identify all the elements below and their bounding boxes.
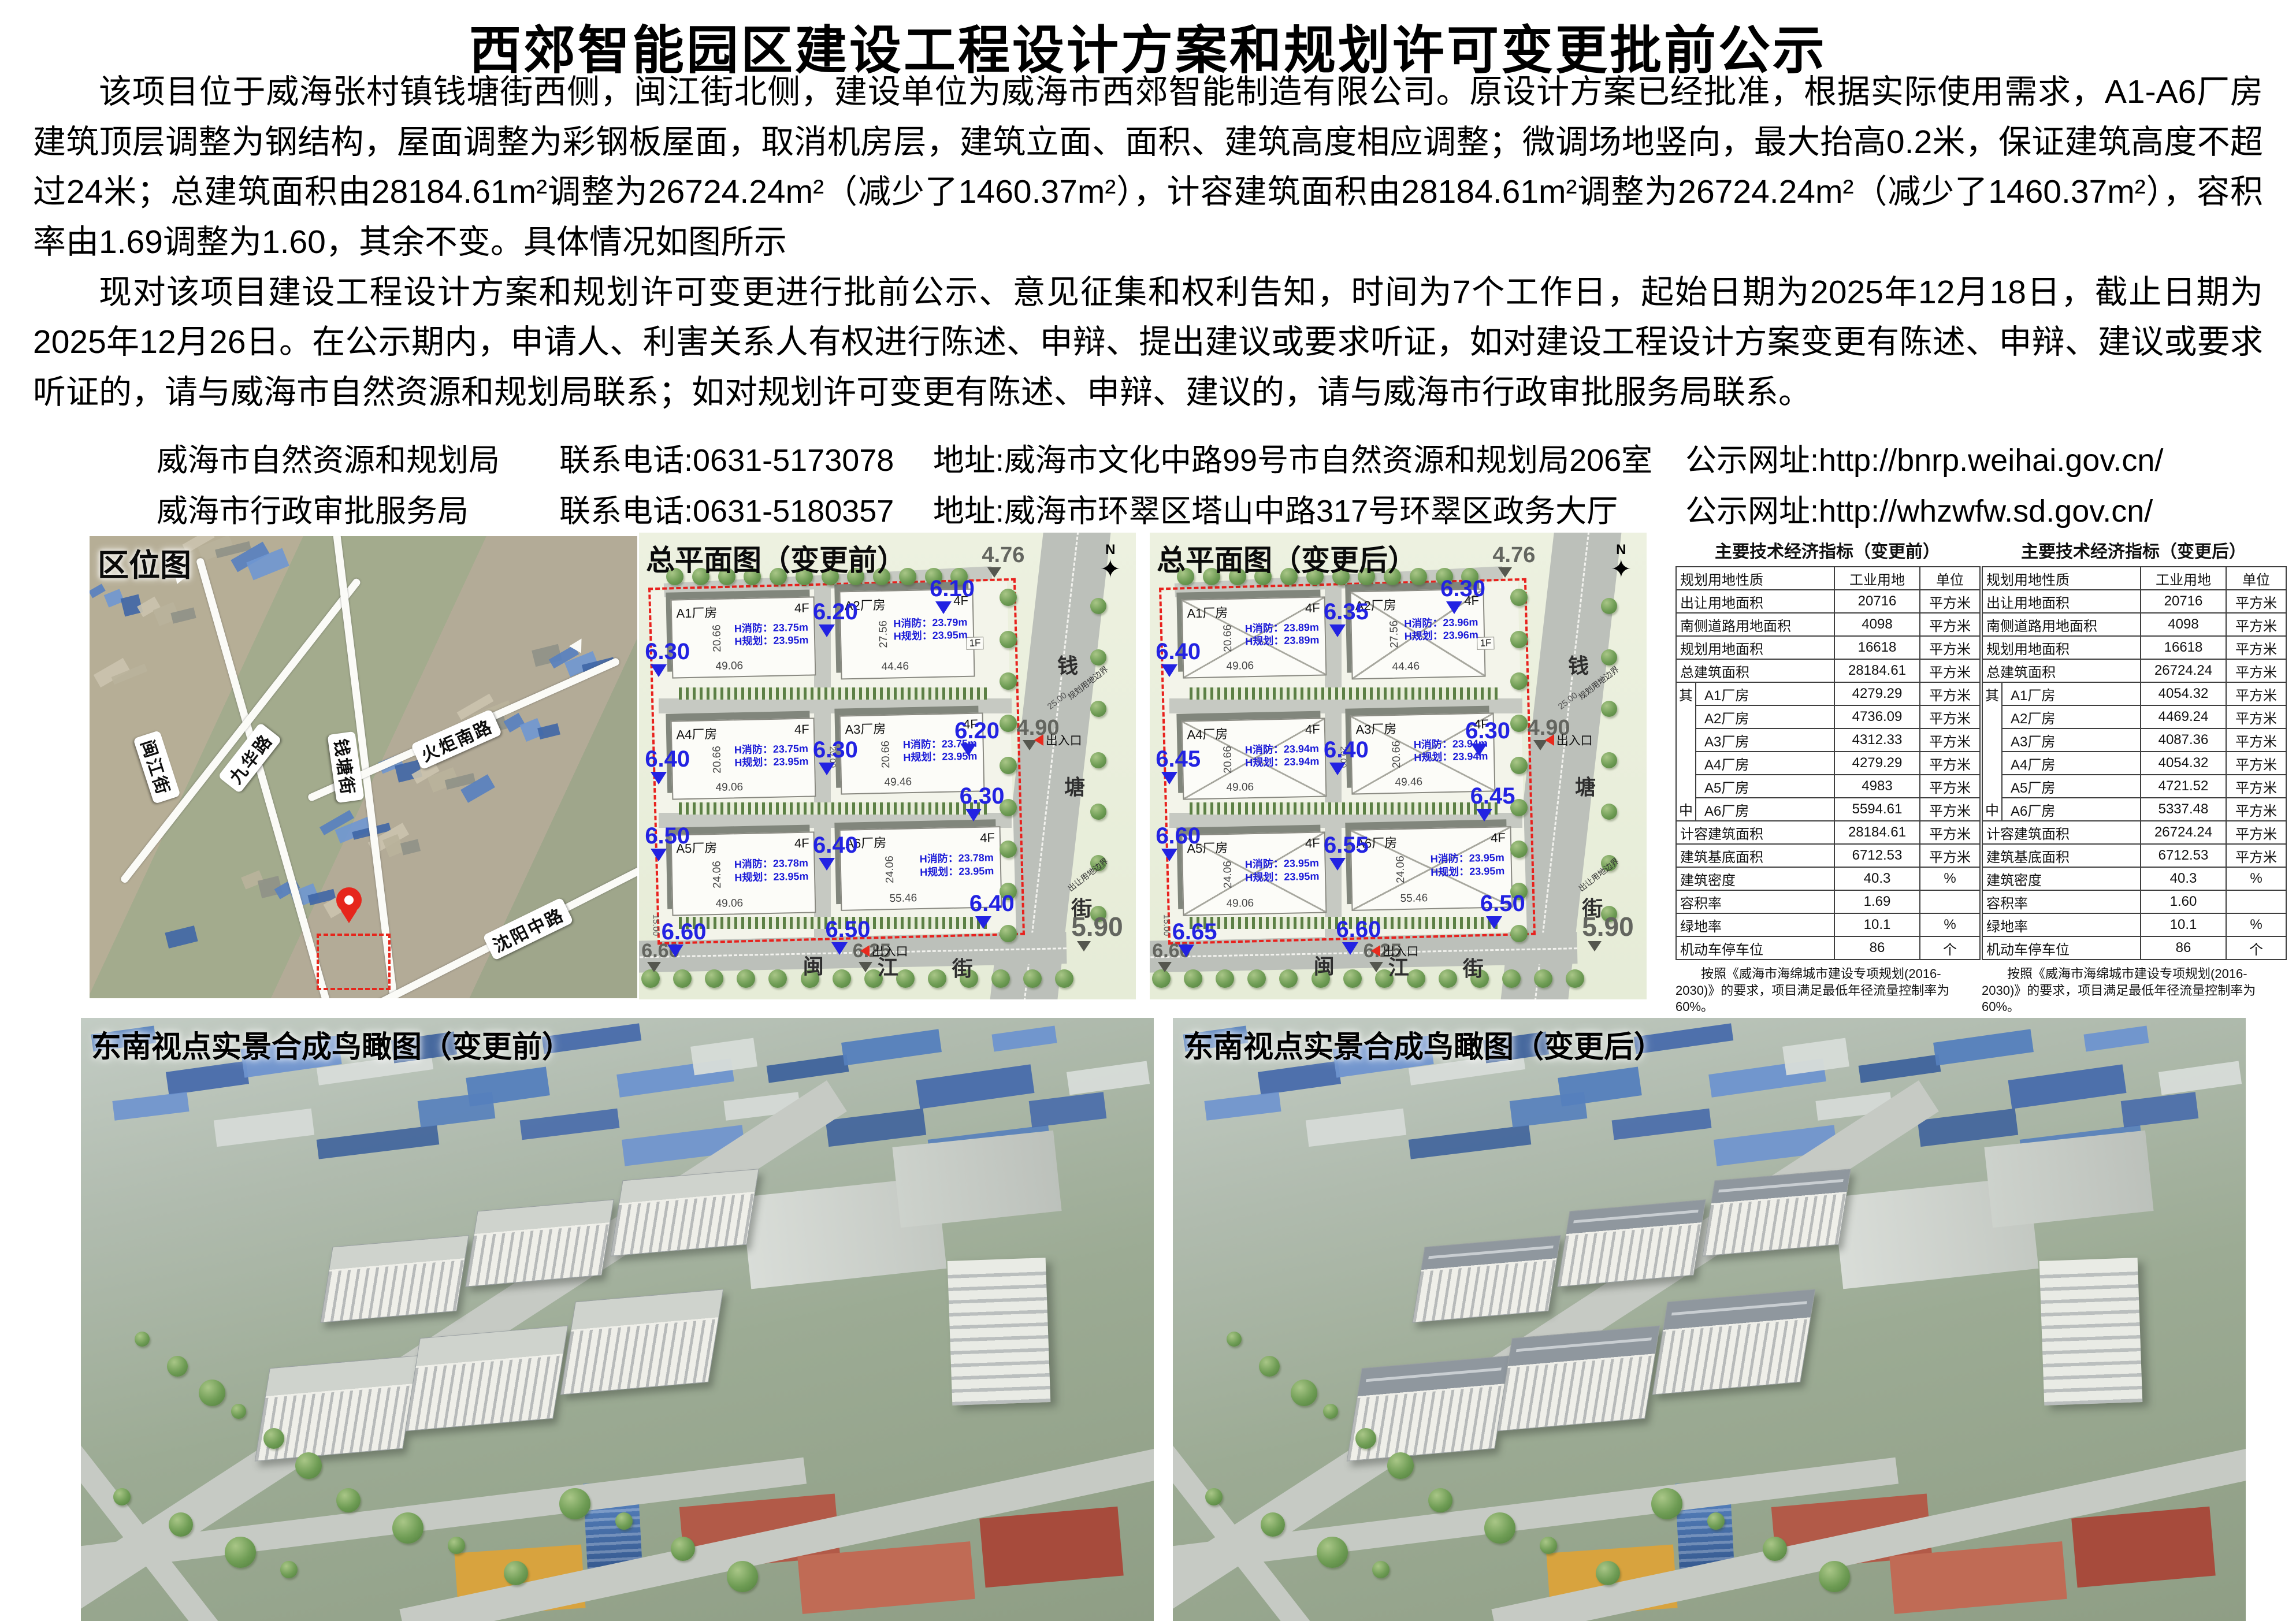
indicator-table-after-panel: 主要技术经济指标（变更后） 规划用地性质工业用地单位出让用地面积20716平方米… [1982,537,2286,1016]
plan-building: A5厂房4FH消防：23.95mH规划：23.95m49.0624.06 [1181,831,1327,916]
window-stripes [1703,1194,1846,1256]
project-building [1557,1199,1706,1287]
group-label-bottom: 中 [1679,799,1693,819]
table-cell: 40.3 [1834,867,1920,890]
tree-icon [1763,1537,1787,1561]
building-floors: 4F [1305,722,1320,738]
table-cell: 总建筑面积 [1676,659,1834,682]
spot-elevation-arrow-icon [819,763,835,775]
table-row: A2厂房4736.09平方米 [1676,705,1980,728]
table-cell: 平方米 [1920,844,1980,867]
spot-elevation-arrow-icon [1329,763,1346,775]
spot-elevation: 6.60 [662,920,707,957]
table-cell: 平方米 [2226,728,2286,752]
spot-elevation-arrow-icon [651,772,667,785]
tree-icon [135,1332,150,1347]
table-row: 建筑基底面积6712.53平方米 [1676,844,1980,867]
building-floors: 4F [794,601,809,616]
table-cell: 建筑密度 [1676,867,1834,890]
tree-icon [1407,969,1425,988]
spot-elevation-value: 6.50 [826,917,871,942]
building-length-dim: 49.06 [715,781,743,794]
table-cell: 16618 [2141,636,2226,659]
tree-icon [448,1537,465,1554]
table-cell: % [2226,867,2286,890]
spot-elevation: 6.30 [645,640,690,677]
spot-elevation-arrow-icon [831,942,848,955]
roof-ridge [1516,1337,1652,1352]
industrial-hall-roof [893,1131,1062,1228]
table-cell: 16618 [1834,636,1920,659]
building-length-dim: 49.06 [715,897,743,910]
spot-elevation-value: 6.40 [1324,737,1369,763]
table-cell: 平方米 [1920,705,1980,728]
table-footnote: 按照《威海市海绵城市建设专项规划(2016-2030)》的要求，项目满足最低年径… [1982,966,2286,1016]
indicator-table-before-panel: 主要技术经济指标（变更前） 规划用地性质工业用地单位出让用地面积20716平方米… [1675,537,1979,1016]
group-label-wrap: 其中 [1983,684,2001,819]
table-cell: 4054.32 [2141,752,2226,775]
tree-icon [1601,649,1617,665]
street-name-south: 街 [952,952,973,982]
road-elevation: 4.76 [982,544,1024,578]
factory-shed-roof [520,1109,620,1140]
table-cell: 个 [2226,936,2286,960]
table-cell: 4736.09 [1834,705,1920,728]
table-cell: 20716 [1834,590,1920,613]
roof-ridge [1671,1302,1807,1316]
building-floors: 4F [980,830,995,846]
table-cell: 1.60 [2141,890,2226,913]
tree-icon [1259,1356,1280,1377]
pin-hole [344,895,354,905]
intro-paragraphs: 该项目位于威海张村镇钱塘街西侧，闽江街北侧，建设单位为威海市西郊智能制造有限公司… [33,67,2263,417]
plan-height: H规划：23.95m [920,864,994,879]
street-name-south: 闽 [803,950,824,980]
map-building-block [400,839,421,856]
table-cell: 平方米 [2226,636,2286,659]
spot-elevation: 6.30 [1465,719,1510,756]
building-label: A3厂房 [1355,719,1397,738]
spot-elevation-arrow-icon [1446,601,1462,614]
table-cell: 平方米 [2226,705,2286,728]
table-row: A4厂房4054.32平方米 [1982,752,2286,775]
tree-icon [1707,1512,1725,1530]
tree-icon [833,969,851,988]
plan-building: A5厂房4FH消防：23.78mH规划：23.95m49.0624.06 [670,831,816,916]
table-cell: 86 [2141,936,2226,960]
table-row: 其中A1厂房4054.32平方米 [1982,682,2286,705]
table-cell: 4469.24 [2141,705,2226,728]
spot-elevation-value: 6.40 [813,832,858,858]
table-cell: 规划用地面积 [1676,636,1834,659]
tree-icon [225,1537,256,1568]
building-length-dim: 44.46 [1392,660,1420,674]
tree-icon [199,1380,225,1406]
tree-icon [1355,1428,1376,1449]
location-pin-icon [336,887,362,924]
tree-icon [1510,631,1528,648]
spot-elevation: 6.40 [1156,640,1201,677]
table-row: A5厂房4721.52平方米 [1982,775,2286,798]
building-length-dim: 49.06 [1226,897,1254,910]
tree-icon [1216,969,1234,988]
spot-elevation-arrow-icon [651,849,667,861]
entrance-arrow-icon [1545,734,1554,746]
building-width-dim: 20.66 [711,746,724,774]
roof-ridge [1573,1209,1698,1222]
group-label-top: 其 [1679,684,1693,704]
spot-elevation-value: 6.30 [960,783,1005,809]
table-row: A5厂房4983平方米 [1676,775,1980,798]
spot-elevation: 6.55 [1324,834,1369,871]
street-name-east: 钱 [1568,649,1589,679]
indicator-table-grid: 规划用地性质工业用地单位出让用地面积20716平方米南侧道路用地面积4098平方… [1982,566,2287,960]
factory-shed-roof [1029,1092,1107,1128]
tree-icon [673,969,692,988]
contact-row: 威海市行政审批服务局 联系电话:0631-5180357 地址:威海市环翠区塔山… [33,485,2263,536]
factory-shed-roof [842,1029,942,1066]
spot-elevation-arrow-icon [935,601,952,614]
spot-elevation-arrow-icon [1486,916,1502,929]
table-cell: 绿地率 [1676,913,1834,936]
project-building [1412,1235,1561,1323]
tree-icon [1090,649,1106,665]
tree-icon [1323,1404,1338,1419]
fire-height: H消防：23.95m [1431,851,1505,865]
spot-elevation-arrow-icon [1161,849,1177,861]
table-row: 规划用地面积16618平方米 [1982,636,2286,659]
tree-icon [1601,598,1617,614]
table-cell: A1厂房 [2002,682,2141,705]
table-cell: 4721.52 [2141,775,2226,798]
table-cell: 平方米 [2226,613,2286,636]
project-building [560,1289,724,1395]
building-width-dim: 24.06 [883,855,897,883]
table-row: 容积率1.60 [1982,890,2286,913]
table-cell: 规划用地性质 [1982,567,2141,590]
building-height-note: H消防：23.79mH规划：23.95m [893,616,968,644]
building-annex-label: 1F [967,637,984,650]
building-label: A4厂房 [676,724,718,743]
table-row: 出让用地面积20716平方米 [1982,590,2286,613]
building-length-dim: 55.46 [890,891,917,905]
plan-height: H规划：23.95m [1245,869,1320,884]
table-cell: % [2226,913,2286,936]
window-stripes [1653,1319,1810,1395]
tree-icon [1055,969,1073,988]
project-building [404,1325,568,1431]
spot-elevation: 6.30 [813,738,858,775]
spot-elevation-value: 6.45 [1156,746,1201,772]
tree-icon [1387,1452,1414,1479]
entrance-arrow-icon [860,945,870,957]
tree-icon [504,1561,528,1585]
table-cell [1920,890,1980,913]
factory-shed-roof [2121,1092,2199,1128]
roof-ridge [1718,1179,1843,1192]
table-cell: 4983 [1834,775,1920,798]
spot-elevation: 6.35 [1324,600,1369,637]
spot-elevation-value: 6.45 [1470,783,1515,809]
table-row: 建筑基底面积6712.53平方米 [1982,844,2286,867]
contact-row: 威海市自然资源和规划局 联系电话:0631-5173078 地址:威海市文化中路… [33,434,2263,485]
spot-elevation-value: 6.30 [1440,576,1485,601]
window-stripes [1347,1385,1504,1460]
factory-shed-roof [767,1054,849,1083]
building-width-dim: 27.56 [878,620,891,648]
building-height-note: H消防：23.75mH规划：23.95m [734,621,809,649]
road-elevation-arrow-icon [1369,962,1383,972]
table-cell: 平方米 [2226,590,2286,613]
building-height-note: H消防：23.75mH规划：23.95m [734,742,809,770]
table-cell: A2厂房 [1696,705,1834,728]
table-row: 其中A1厂房4279.29平方米 [1676,682,1980,705]
table-cell: 10.1 [1834,913,1920,936]
table-cell: 平方米 [1920,636,1980,659]
table-cell: 28184.61 [1834,821,1920,844]
tree-icon [671,1537,695,1561]
tree-icon [1227,1332,1242,1347]
contact-address: 地址:威海市文化中路99号市自然资源和规划局206室 [933,434,1652,480]
building-height-note: H消防：23.95mH规划：23.95m [1245,856,1320,884]
spot-elevation-value: 6.50 [645,823,690,849]
table-cell: A4厂房 [1696,752,1834,775]
table-cell: 平方米 [2226,844,2286,867]
table-row: 建筑密度40.3% [1982,867,2286,890]
table-cell: 建筑密度 [1982,867,2141,890]
table-cell: 平方米 [2226,798,2286,821]
spot-elevation: 6.40 [969,892,1015,929]
spot-elevation-value: 6.30 [1465,718,1510,743]
spot-elevation-arrow-icon [819,858,835,871]
road-elevation-value: 5.90 [1071,912,1123,942]
contact-org: 威海市自然资源和规划局 [157,434,500,480]
compass-star-icon: ✦ [1610,558,1632,581]
building-height-note: H消防：23.94mH规划：23.94m [1245,742,1320,770]
table-row: A6厂房5337.48平方米 [1982,798,2286,821]
table-row: 规划用地面积16618平方米 [1676,636,1980,659]
spot-elevation-arrow-icon [667,945,683,957]
tree-icon [1090,598,1106,614]
road-elevation-arrow-icon [1077,941,1091,951]
fire-height: H消防：23.95m [1245,856,1320,871]
contact-website: 公示网址:http://bnrp.weihai.gov.cn/ [1685,434,2163,480]
table-cell [2226,890,2286,913]
tree-icon [113,1488,131,1505]
spot-elevation: 6.45 [1156,748,1201,785]
factory-shed-roof [1783,1038,1850,1075]
tree-icon [1372,1561,1390,1578]
tree-icon [295,1452,322,1479]
table-cell: A5厂房 [1696,775,1834,798]
building-length-dim: 49.06 [1226,660,1254,673]
spot-elevation-arrow-icon [1471,743,1487,756]
entrance-label: 出入口 [1545,731,1593,749]
table-cell: 86 [1834,936,1920,960]
spot-elevation-value: 6.60 [662,919,707,945]
table-cell: 平方米 [2226,752,2286,775]
building-floors: 4F [1305,601,1320,616]
table-row: 机动车停车位86个 [1982,936,2286,960]
map-building-block [90,583,106,598]
entrance-text: 出入口 [872,942,908,960]
project-building [465,1199,614,1287]
street-name-east: 塘 [1575,771,1596,801]
factory-shed-roof [916,1064,1035,1109]
spot-elevation: 6.30 [1440,577,1485,614]
fire-height: H消防：23.94m [1245,742,1320,757]
road-label: 沈阳中路 [482,897,574,961]
factory-shed-roof [691,1038,758,1075]
table-cell: 5594.61 [1834,798,1920,821]
table-cell: 计容建筑面积 [1676,821,1834,844]
entrance-label: 出入口 [860,942,908,960]
spot-elevation-value: 6.60 [1156,823,1201,849]
tree-icon [1502,969,1521,988]
plan-height: H规划：23.95m [894,629,968,644]
aerial-view-title: 东南视点实景合成鸟瞰图（变更前） [91,1023,572,1066]
table-cell: 平方米 [2226,821,2286,844]
plan-height: H规划：23.95m [734,869,809,884]
factory-shed-roof [1859,1054,1941,1083]
spot-elevation: 6.40 [1324,738,1369,775]
building-floors: 4F [1305,836,1320,852]
road-elevation: 4.76 [1492,544,1535,578]
tree-icon [737,969,755,988]
table-row: 绿地率10.1% [1982,913,2286,936]
building-length-dim: 49.06 [1226,781,1254,794]
tree-icon [1819,1561,1850,1592]
road-elevation-arrow-icon [647,962,661,972]
tree-icon [167,1356,188,1377]
factory-shed-roof [214,1109,314,1147]
red-roof-building [2071,1507,2216,1587]
table-cell: 平方米 [2226,682,2286,705]
table-cell: 出让用地面积 [1982,590,2141,613]
table-cell: 总建筑面积 [1982,659,2141,682]
tree-icon [1566,969,1584,988]
spot-elevation: 6.10 [930,577,975,614]
roof-ridge [1429,1246,1554,1259]
table-row: 规划用地性质工业用地单位 [1676,567,1980,590]
red-roof-building [979,1507,1124,1587]
project-building [1496,1325,1660,1431]
table-cell: 单位 [1920,567,1980,590]
street-name-south: 街 [1463,952,1484,982]
spot-elevation-value: 6.35 [1324,599,1369,624]
tree-icon [1205,1488,1223,1505]
table-cell: 4087.36 [2141,728,2226,752]
street-name-south: 闽 [1314,950,1335,980]
spot-elevation-arrow-icon [1161,772,1177,785]
tree-icon [1439,969,1457,988]
table-cell: 平方米 [1920,682,1980,705]
tree-icon [1534,969,1552,988]
building-width-dim: 24.06 [1394,855,1407,883]
tree-icon [768,969,787,988]
compass-star-icon: ✦ [1099,558,1121,581]
location-map-panel: 区位图 闽江街九华路钱塘街火炬南路沈阳中路 [90,536,637,998]
spot-elevation-arrow-icon [1342,942,1358,955]
spot-elevation: 6.60 [1156,824,1201,861]
tree-icon [1317,1537,1348,1568]
road-elevation-arrow-icon [987,567,1001,578]
table-cell: 1.69 [1834,890,1920,913]
table-cell: 平方米 [2226,659,2286,682]
table-cell: 单位 [2226,567,2286,590]
table-cell: % [1920,867,1980,890]
table-cell: 4098 [2141,613,2226,636]
spot-elevation-value: 6.40 [645,746,690,772]
tree-icon [1279,969,1298,988]
fire-height: H消防：23.78m [734,856,809,871]
window-stripes [321,1260,465,1322]
contact-phone: 联系电话:0631-5180357 [559,485,894,531]
table-cell: 建筑基底面积 [1676,844,1834,867]
paragraph-project-change: 该项目位于威海张村镇钱塘街西侧，闽江街北侧，建设单位为威海市西郊智能制造有限公司… [33,67,2263,267]
factory-shed-roof [1204,1092,1281,1121]
table-cell: 容积率 [1982,890,2141,913]
tree-icon [280,1561,298,1578]
table-cell: A1厂房 [1696,682,1834,705]
building-height-note: H消防：23.96mH规划：23.96m [1404,616,1478,644]
building-width-dim: 24.06 [1221,860,1235,888]
fire-height: H消防：23.79m [893,616,968,630]
table-cell: 5337.48 [2141,798,2226,821]
spot-elevation-arrow-icon [1178,945,1194,957]
window-stripes [611,1194,754,1256]
factory-shed-roof [1612,1109,1712,1140]
tree-icon [263,1428,284,1449]
table-row: A3厂房4312.33平方米 [1676,728,1980,752]
window-stripes [1498,1355,1655,1430]
indicator-table: 规划用地性质工业用地单位出让用地面积20716平方米南侧道路用地面积4098平方… [1675,566,1979,960]
table-group-cell: 其中 [1676,682,1696,821]
spot-elevation-value: 6.10 [930,576,975,601]
road-elevation: 5.90 [1071,913,1123,951]
site-plan-after-panel: 总平面图（变更后） A1厂房4FH消防：23.89mH规划：23.89m49.0… [1150,533,1647,999]
entrance-text: 出入口 [1046,731,1082,749]
table-row: 出让用地面积20716平方米 [1676,590,1980,613]
spot-elevation-arrow-icon [975,916,991,929]
north-compass-icon: N✦ [1099,542,1121,581]
factory-shed-roof [1408,1125,1531,1159]
table-cell: 容积率 [1676,890,1834,913]
table-cell: 机动车停车位 [1676,936,1834,960]
road-elevation-arrow-icon [1158,962,1172,972]
tree-icon [1601,752,1617,768]
table-cell: % [1920,913,1980,936]
building-height-note: H消防：23.89mH规划：23.89m [1245,621,1320,649]
tree-icon [1090,804,1106,820]
pin-ball [336,887,362,913]
factory-shed-roof [2158,1061,2242,1095]
contact-block: 威海市自然资源和规划局 联系电话:0631-5173078 地址:威海市文化中路… [33,434,2263,536]
road-dim: 15.00 [1162,914,1172,936]
table-cell: 20716 [2141,590,2226,613]
roof-ridge [1366,1367,1502,1382]
spot-elevation: 6.20 [813,600,858,637]
building-width-dim: 20.66 [711,624,724,652]
tree-icon [1247,969,1266,988]
table-cell: 平方米 [1920,590,1980,613]
building-height-note: H消防：23.78mH规划：23.95m [734,856,809,884]
spot-elevation-arrow-icon [1161,664,1177,677]
building-height-note: H消防：23.78mH规划：23.95m [920,851,994,879]
table-cell: 4279.29 [1834,682,1920,705]
spot-elevation-arrow-icon [965,809,982,821]
table-cell: 规划用地性质 [1676,567,1834,590]
